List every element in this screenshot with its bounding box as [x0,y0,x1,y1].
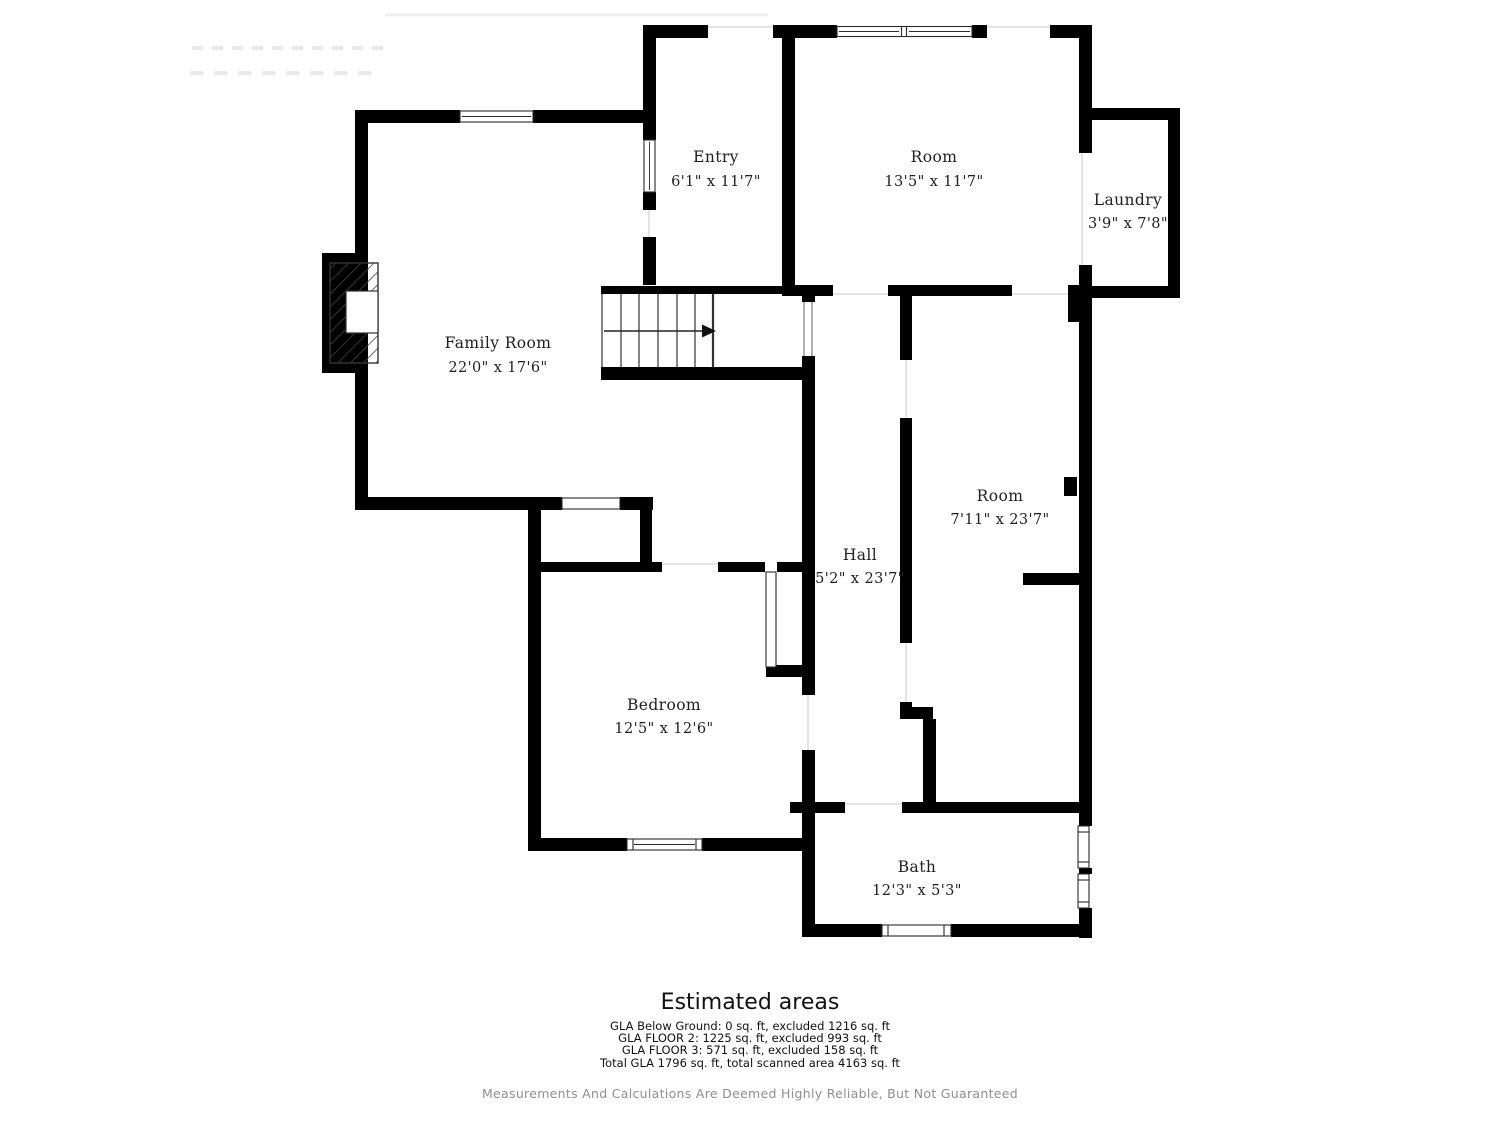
estimated-areas-title: Estimated areas [0,990,1500,1015]
room-dims-bedroom: 12'5" x 12'6" [614,721,713,737]
room-label-room-top: Room [911,148,958,166]
room-label-room-right: Room [977,487,1024,505]
closet-door-panel [766,572,776,667]
estimated-areas-lines: GLA Below Ground: 0 sq. ft, excluded 121… [0,1020,1500,1069]
gla-line-floor-3: GLA FLOOR 3: 571 sq. ft, excluded 158 sq… [0,1044,1500,1056]
window [1078,826,1089,868]
window [562,498,620,509]
room-label-hall: Hall [843,546,877,564]
scan-artifact [190,15,768,73]
room-label-bath: Bath [898,858,936,876]
room-label-bedroom: Bedroom [627,696,701,714]
door-openings [649,27,1082,804]
room-label-family-room: Family Room [445,334,552,352]
window [837,27,972,37]
floorplan-page: Entry 6'1" x 11'7" Room 13'5" x 11'7" La… [0,0,1500,1125]
room-dims-family-room: 22'0" x 17'6" [448,360,547,376]
room-dims-room-right: 7'11" x 23'7" [950,512,1049,528]
window [644,140,655,192]
windows [460,27,1089,937]
disclaimer-text: Measurements And Calculations Are Deemed… [0,1086,1500,1101]
room-dims-laundry: 3'9" x 7'8" [1088,216,1168,232]
window [627,839,702,850]
room-dims-entry: 6'1" x 11'7" [671,174,761,190]
room-dims-bath: 12'3" x 5'3" [872,883,962,899]
room-label-laundry: Laundry [1094,191,1162,209]
window [1078,874,1089,908]
room-label-entry: Entry [693,148,739,166]
stairs-landing-door [804,302,812,356]
window [460,111,533,122]
room-dims-room-top: 13'5" x 11'7" [884,174,983,190]
room-dims-hall: 5'2" x 23'7" [815,571,905,587]
floorplan-drawing: Entry 6'1" x 11'7" Room 13'5" x 11'7" La… [0,0,1500,1125]
window [882,925,951,936]
gla-line-total: Total GLA 1796 sq. ft, total scanned are… [0,1057,1500,1069]
walls [322,25,1180,938]
fireplace [330,263,378,363]
